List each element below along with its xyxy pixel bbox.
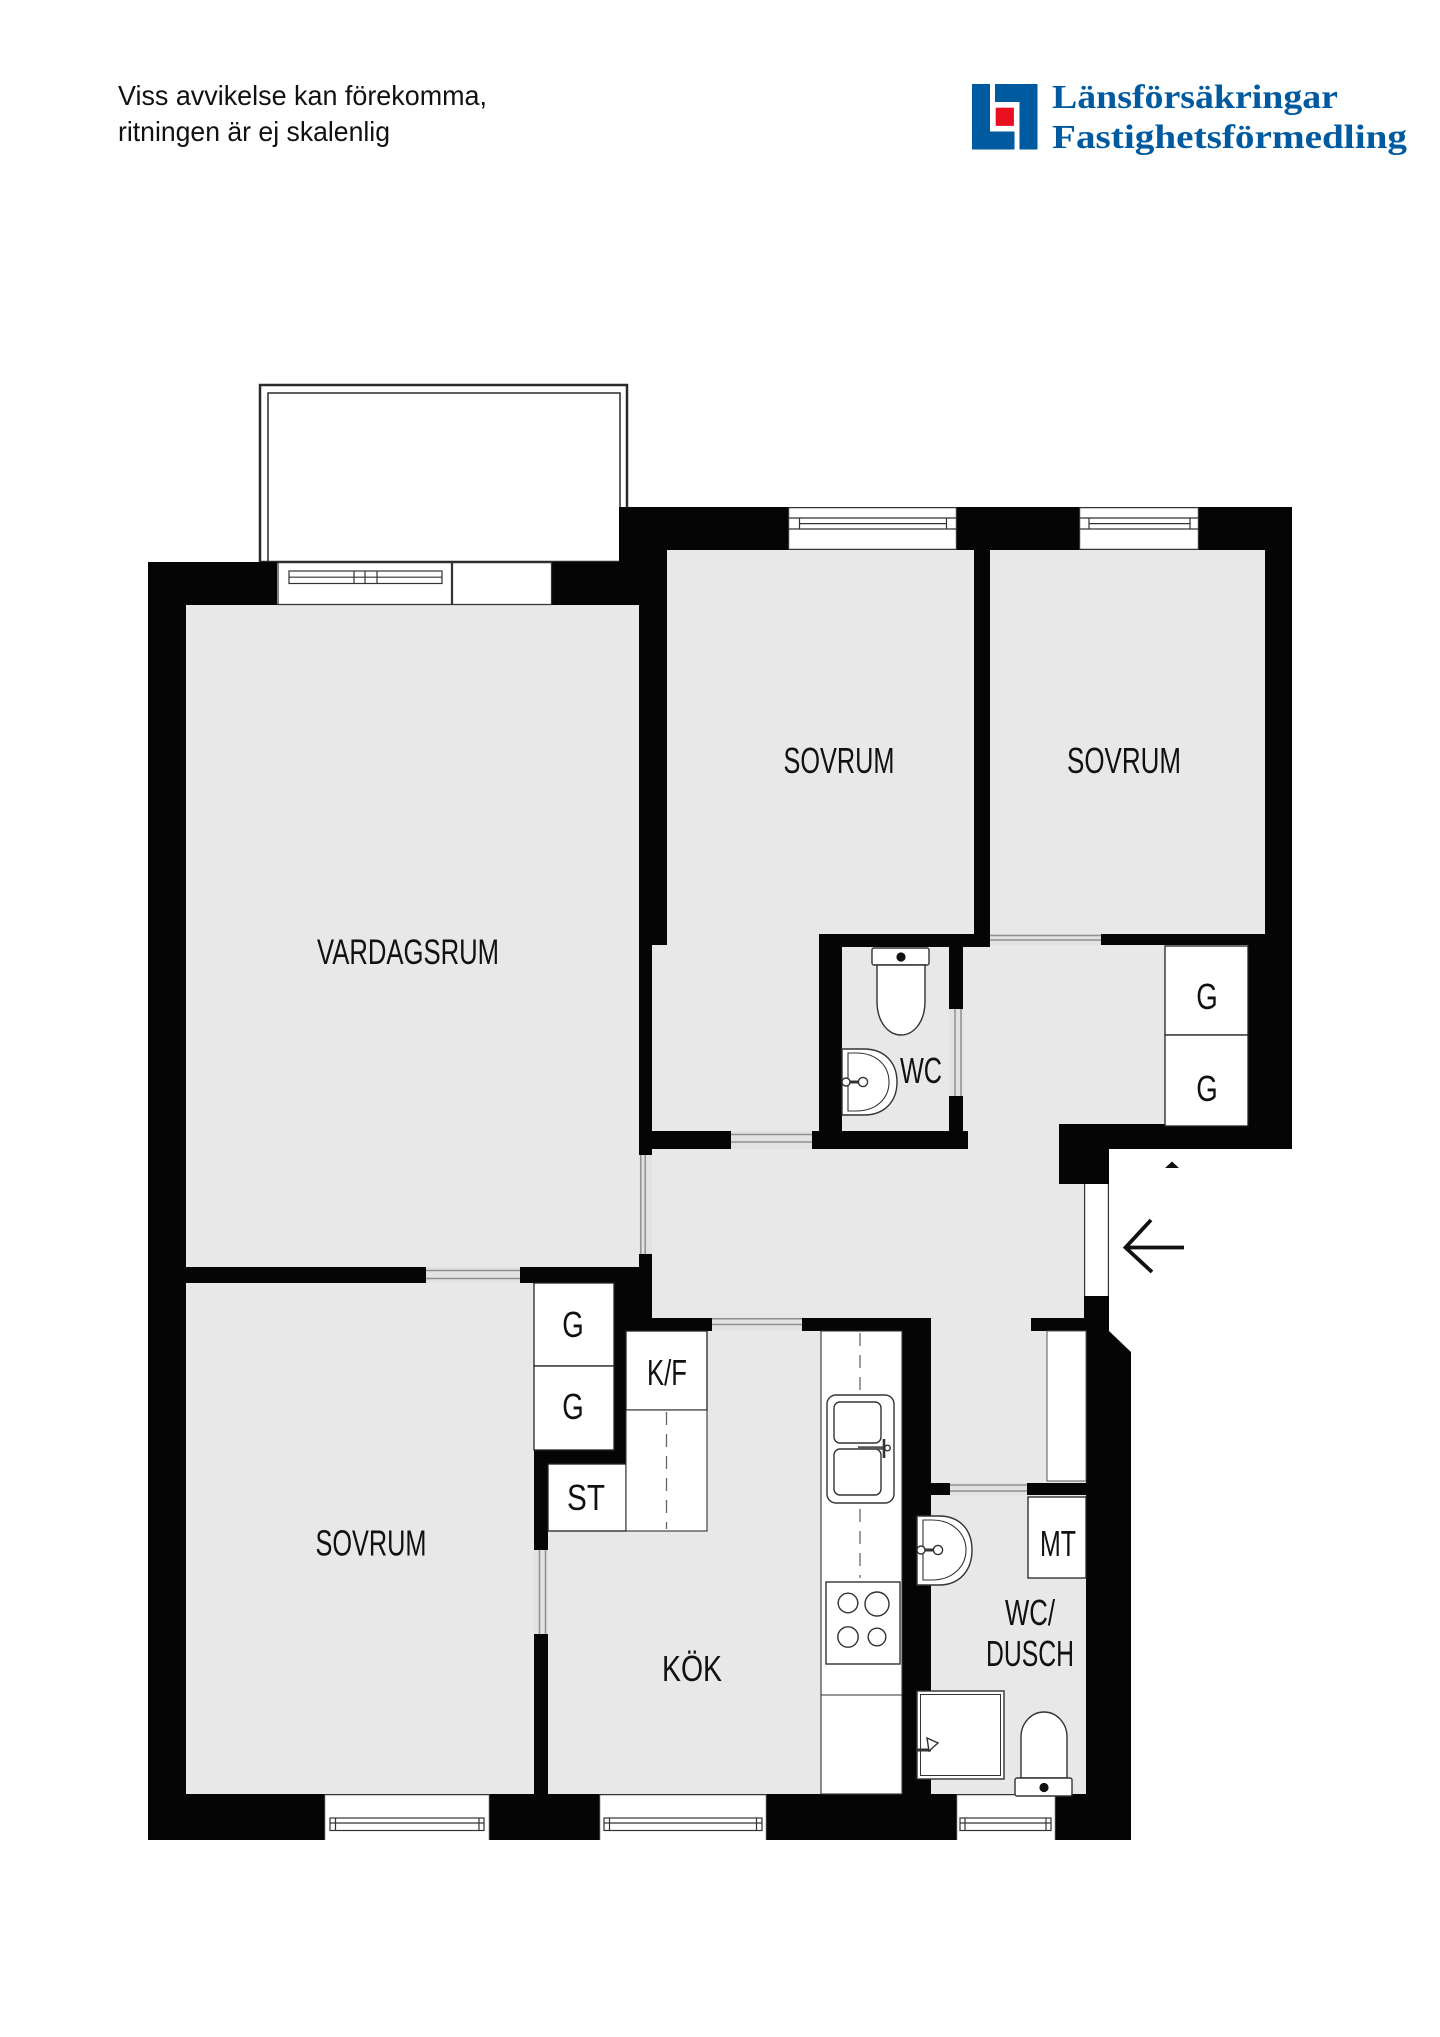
svg-text:KÖK: KÖK [662, 1648, 722, 1689]
svg-text:Länsförsäkringar: Länsförsäkringar [1052, 79, 1338, 116]
svg-text:G: G [562, 1386, 584, 1427]
svg-text:SOVRUM: SOVRUM [784, 740, 895, 781]
svg-text:SOVRUM: SOVRUM [316, 1523, 427, 1564]
svg-text:WC: WC [900, 1050, 942, 1091]
svg-text:MT: MT [1040, 1523, 1076, 1564]
svg-text:SOVRUM: SOVRUM [1067, 740, 1181, 781]
svg-text:G: G [1196, 976, 1218, 1017]
svg-text:WC/: WC/ [1005, 1592, 1056, 1633]
svg-text:DUSCH: DUSCH [986, 1633, 1074, 1674]
svg-text:Fastighetsförmedling: Fastighetsförmedling [1052, 119, 1407, 156]
svg-text:K/F: K/F [647, 1352, 687, 1393]
svg-text:ritningen är ej skalenlig: ritningen är ej skalenlig [118, 116, 390, 147]
svg-text:Viss avvikelse kan förekomma,: Viss avvikelse kan förekomma, [118, 80, 487, 111]
svg-text:ST: ST [567, 1477, 605, 1518]
svg-text:VARDAGSRUM: VARDAGSRUM [317, 933, 499, 972]
svg-text:G: G [1196, 1068, 1218, 1109]
svg-text:G: G [562, 1304, 584, 1345]
